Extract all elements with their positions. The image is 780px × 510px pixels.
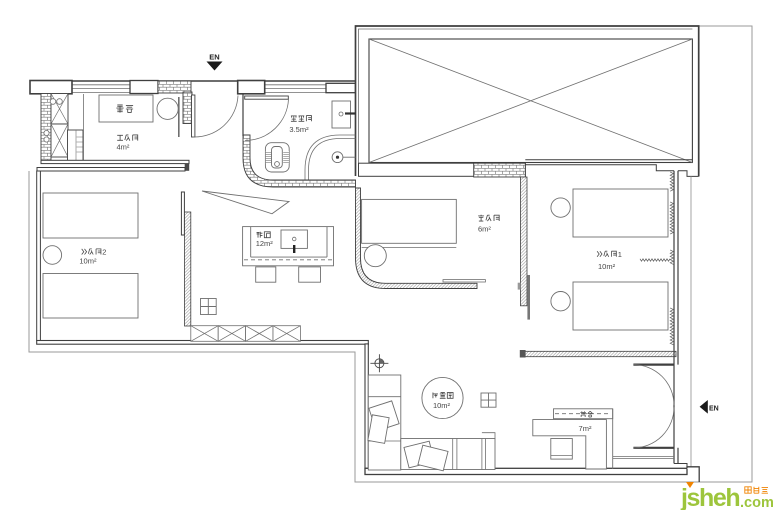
svg-text:7m²: 7m²	[579, 424, 592, 433]
svg-text:EN: EN	[709, 406, 719, 413]
svg-text:1: 1	[618, 250, 622, 259]
svg-text:jsheh: jsheh	[680, 484, 739, 510]
svg-text:10m²: 10m²	[598, 262, 616, 271]
svg-text:3.5m²: 3.5m²	[289, 125, 309, 134]
svg-text:.com: .com	[740, 495, 774, 510]
svg-text:10m²: 10m²	[79, 257, 97, 266]
svg-text:EN: EN	[209, 53, 219, 62]
svg-text:2: 2	[102, 248, 106, 257]
svg-text:4m²: 4m²	[117, 143, 130, 152]
svg-text:10m²: 10m²	[433, 401, 451, 410]
svg-text:12m²: 12m²	[256, 239, 274, 248]
svg-text:6m²: 6m²	[478, 225, 491, 234]
